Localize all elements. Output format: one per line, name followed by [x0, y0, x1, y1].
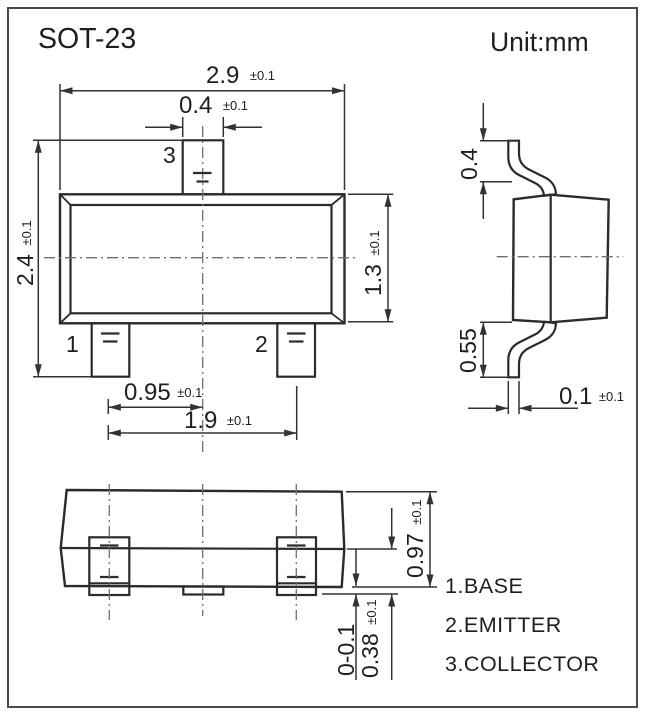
unit-label: Unit:mm: [490, 27, 589, 57]
pin1-label: 1: [66, 331, 79, 357]
dim-standoff-label: 0-0.1: [333, 624, 359, 676]
legend-base: 1.BASE: [445, 574, 523, 598]
dim-lead-bottom-length-label: 0.55: [455, 328, 481, 373]
dim-lead-top-length-label: 0.4: [456, 148, 482, 180]
datasheet-page: SOT-23 Unit:mm 3 1 2: [0, 0, 645, 715]
legend-collector: 3.COLLECTOR: [445, 652, 599, 676]
pin2-label: 2: [255, 331, 268, 357]
page-title: SOT-23: [38, 23, 136, 55]
pin3-label: 3: [163, 142, 176, 168]
side-view-body: [513, 195, 609, 323]
drawing-canvas: SOT-23 Unit:mm 3 1 2: [0, 0, 645, 715]
legend-emitter: 2.EMITTER: [445, 613, 562, 637]
page-border: [8, 8, 637, 707]
